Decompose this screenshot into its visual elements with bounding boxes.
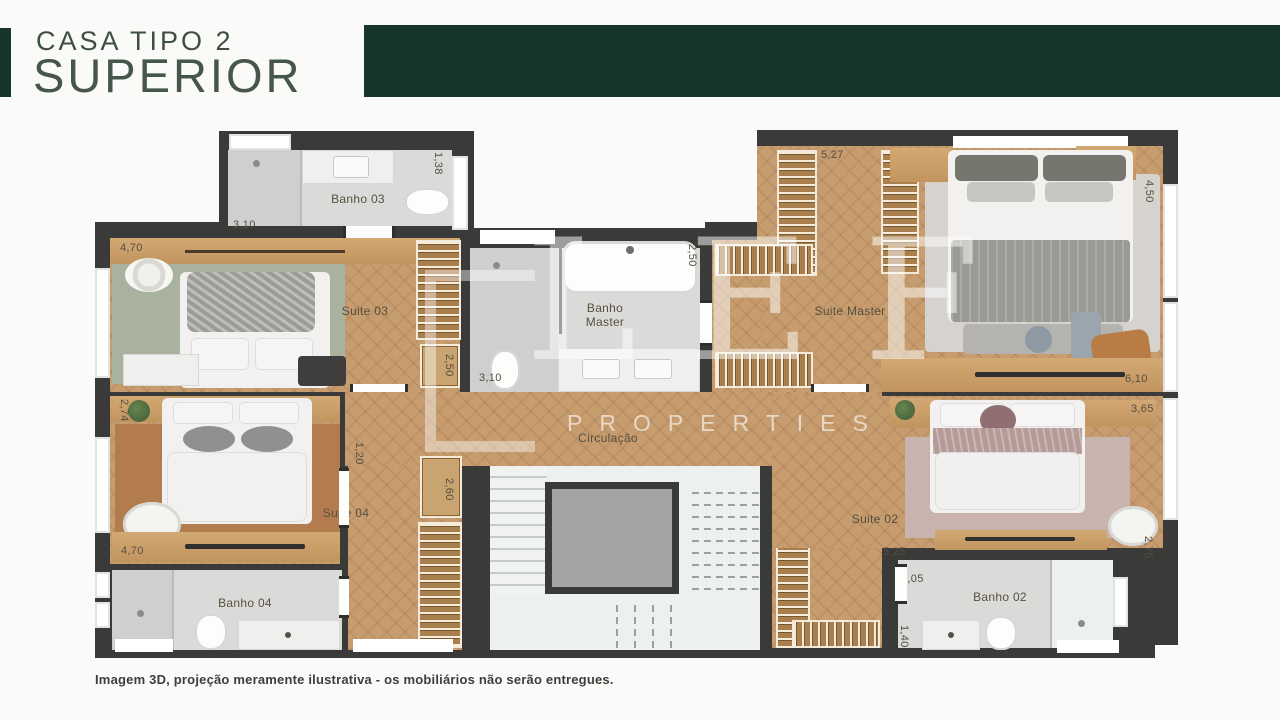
bed-pillows [1043, 155, 1126, 181]
bed-duvet [167, 452, 307, 522]
window [95, 572, 110, 598]
window [452, 156, 468, 230]
window [1113, 577, 1128, 627]
dim-hall-width: 1,20 [353, 442, 365, 465]
bed-blanket [933, 428, 1082, 454]
room-label-banho04: Banho 04 [200, 596, 290, 610]
round-cushion [1025, 326, 1052, 353]
window [95, 437, 110, 533]
brand-accent-bar [0, 28, 11, 97]
closet-rack [792, 620, 880, 648]
shower-head [137, 610, 144, 617]
stair-void [545, 482, 679, 594]
shelf-line [185, 250, 345, 253]
dim-suite04-closet: 2,60 [443, 478, 455, 501]
toilet [195, 614, 227, 650]
dim-suite-master-len: 4,50 [1143, 180, 1155, 203]
dim-banho03-width: 3,10 [233, 219, 256, 231]
bed-pillows [955, 155, 1038, 181]
shower-area [228, 150, 302, 226]
bed-duvet [935, 452, 1080, 510]
wall-niche [480, 230, 555, 244]
dim-banho03-len: 1,38 [432, 152, 444, 175]
shower-drain [1078, 620, 1085, 627]
dim-suite04-width: 4,70 [121, 545, 144, 557]
wall-niche [115, 639, 173, 652]
bench-dark [298, 356, 346, 386]
nightstand [890, 148, 950, 182]
room-label-suite02: Suite 02 [835, 512, 915, 526]
window [1163, 184, 1178, 298]
dim-master-closet-width: 5,27 [821, 149, 844, 161]
closet-rack [416, 240, 461, 340]
closet-rack [715, 352, 813, 388]
room-label-circulacao: Circulação [548, 431, 668, 445]
dresser [123, 354, 199, 386]
sink [333, 156, 369, 178]
dim-suite-master-width: 6,10 [1125, 373, 1148, 385]
dim-suite02-len: 2,75 [1142, 536, 1154, 559]
room-label-banho-master: Banho Master [555, 302, 655, 330]
shower-head [253, 160, 260, 167]
closet-rack [418, 522, 462, 648]
toilet [985, 616, 1017, 650]
toilet [490, 350, 520, 390]
dim-suite02-shelf: 3,65 [1131, 403, 1154, 415]
tub-faucet [626, 246, 634, 254]
door [339, 576, 349, 618]
plant [895, 400, 915, 420]
dim-banho-master-width: 3,10 [479, 372, 502, 384]
disclaimer-text: Imagem 3D, projeção meramente ilustrativ… [95, 672, 614, 687]
tv [965, 537, 1075, 541]
bed-duvet [951, 240, 1130, 322]
room-label-suite03: Suite 03 [325, 304, 405, 318]
page-title: SUPERIOR [33, 48, 303, 103]
window [95, 268, 110, 378]
bed-pillows [173, 402, 233, 424]
bed-pillows [239, 402, 299, 424]
brand-banner [364, 25, 1280, 97]
faucet [948, 632, 954, 638]
shower-area [112, 570, 174, 650]
stairs-dashed [600, 600, 680, 648]
dim-suite03-width: 4,70 [120, 242, 143, 254]
window [1163, 398, 1178, 520]
wall-niche [353, 639, 453, 652]
closet-rack [715, 244, 813, 276]
door [895, 564, 907, 604]
sink [582, 359, 620, 379]
bed-cushion [183, 426, 235, 452]
wall-niche [1057, 640, 1119, 653]
room-label-banho02: Banho 02 [955, 590, 1045, 604]
bed-pillows [1010, 403, 1075, 427]
tv [185, 544, 305, 549]
bed-cushion [241, 426, 293, 452]
bed-pillows [1045, 182, 1113, 202]
closet-cabinet [420, 456, 462, 518]
dim-suite02-width: 5,25 [883, 546, 906, 558]
dim-suite03-closet: 2,50 [443, 354, 455, 377]
dim-banho-master-len: 2,50 [686, 244, 698, 267]
shower-head [493, 262, 500, 269]
shower-area [1050, 560, 1113, 648]
room-label-banho03: Banho 03 [295, 192, 421, 206]
decor-hat [125, 258, 173, 292]
bed-blanket [187, 272, 315, 332]
dim-suite04-len: 2,74 [118, 399, 130, 422]
window [1163, 302, 1178, 392]
vanity-counter [558, 348, 700, 392]
plant [128, 400, 150, 422]
sink [634, 359, 672, 379]
dim-banho02-len: 1,40 [898, 625, 910, 648]
room-label-suite-master: Suite Master [790, 304, 910, 318]
door [339, 468, 349, 528]
stairs [490, 466, 547, 596]
floor-plan: Banho 03 3,10 1,38 Suite 03 4,70 2,50 Ba… [95, 122, 1180, 658]
tv [975, 372, 1125, 377]
window [229, 134, 291, 150]
bed-pillows [191, 338, 249, 370]
bed-pillows [967, 182, 1035, 202]
faucet [285, 632, 291, 638]
window [95, 602, 110, 628]
stairs-dashed [687, 482, 760, 596]
